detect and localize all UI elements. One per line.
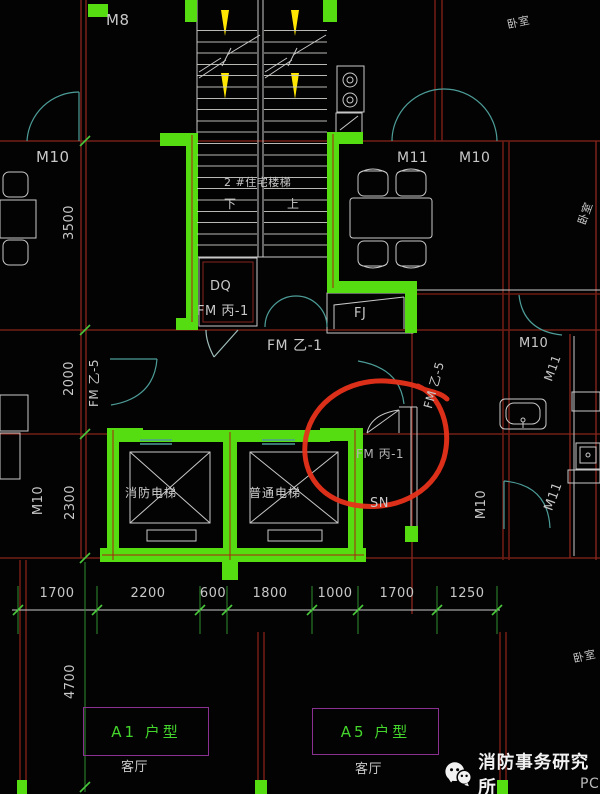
stair-name-label: 2 #住宅楼梯 xyxy=(224,177,291,188)
fj-room-label: FJ xyxy=(354,307,366,320)
unit-a1-box: A1 户型 xyxy=(83,707,209,756)
stair-down-label: 下 xyxy=(224,198,237,210)
dim-2000: 2000 xyxy=(63,361,76,396)
living-room-a1-label: 客厅 xyxy=(121,761,148,774)
watermark-text: 消防事务研究所 xyxy=(478,749,600,794)
wechat-icon xyxy=(444,759,472,789)
sn-label: SN xyxy=(370,497,389,510)
fire-elevator-label: 消防电梯 xyxy=(125,487,177,499)
door-tag-m10-left-mid: M10 xyxy=(32,486,45,515)
dim-1700-a: 1700 xyxy=(39,587,74,600)
dim-1250: 1250 xyxy=(449,587,484,600)
dim-4700: 4700 xyxy=(64,664,77,699)
stair-flight-right xyxy=(264,30,327,255)
fire-door-tag-bing1-upper: FM 丙-1 xyxy=(197,305,249,318)
dining-table xyxy=(350,198,432,238)
fire-door-tag-yi5-left: FM 乙-5 xyxy=(88,359,100,407)
dq-shaft-label: DQ xyxy=(210,280,231,293)
dim-600: 600 xyxy=(200,587,226,600)
room-outlines xyxy=(197,0,600,556)
dim-1000: 1000 xyxy=(317,587,352,600)
door-tag-m11-dining: M11 xyxy=(397,151,428,165)
living-room-a5-label: 客厅 xyxy=(355,763,382,776)
circled-door-leaf xyxy=(367,410,399,433)
door-tag-m8: M8 xyxy=(106,13,130,28)
unit-a5-label: A5 户型 xyxy=(341,721,411,742)
door-tag-m10-bath: M10 xyxy=(519,337,548,350)
dim-3500: 3500 xyxy=(63,205,76,240)
left-table xyxy=(0,200,36,238)
door-tag-m10-entry: M10 xyxy=(459,151,490,165)
dim-1800: 1800 xyxy=(252,587,287,600)
common-elevator-label: 普通电梯 xyxy=(249,487,301,499)
fire-door-tag-yi1: FM 乙-1 xyxy=(267,339,323,353)
cad-floor-plan: M8 2 #住宅楼梯 下 上 M10 3500 卧室 M11 M10 卧室 DQ… xyxy=(0,0,600,794)
dim-1700-b: 1700 xyxy=(379,587,414,600)
watermark: 消防事务研究所 xyxy=(444,749,600,794)
door-tag-m10-top-left: M10 xyxy=(36,150,70,165)
fire-door-tag-bing1-circled: FM 丙-1 xyxy=(356,448,404,460)
stair-up-label: 上 xyxy=(287,198,300,210)
unit-a5-box: A5 户型 xyxy=(312,708,439,755)
dim-2300: 2300 xyxy=(64,485,77,520)
door-tag-m10-corridor: M10 xyxy=(475,490,488,519)
stair-flight-left xyxy=(197,30,257,255)
unit-a1-label: A1 户型 xyxy=(111,721,181,742)
dim-2200: 2200 xyxy=(130,587,165,600)
